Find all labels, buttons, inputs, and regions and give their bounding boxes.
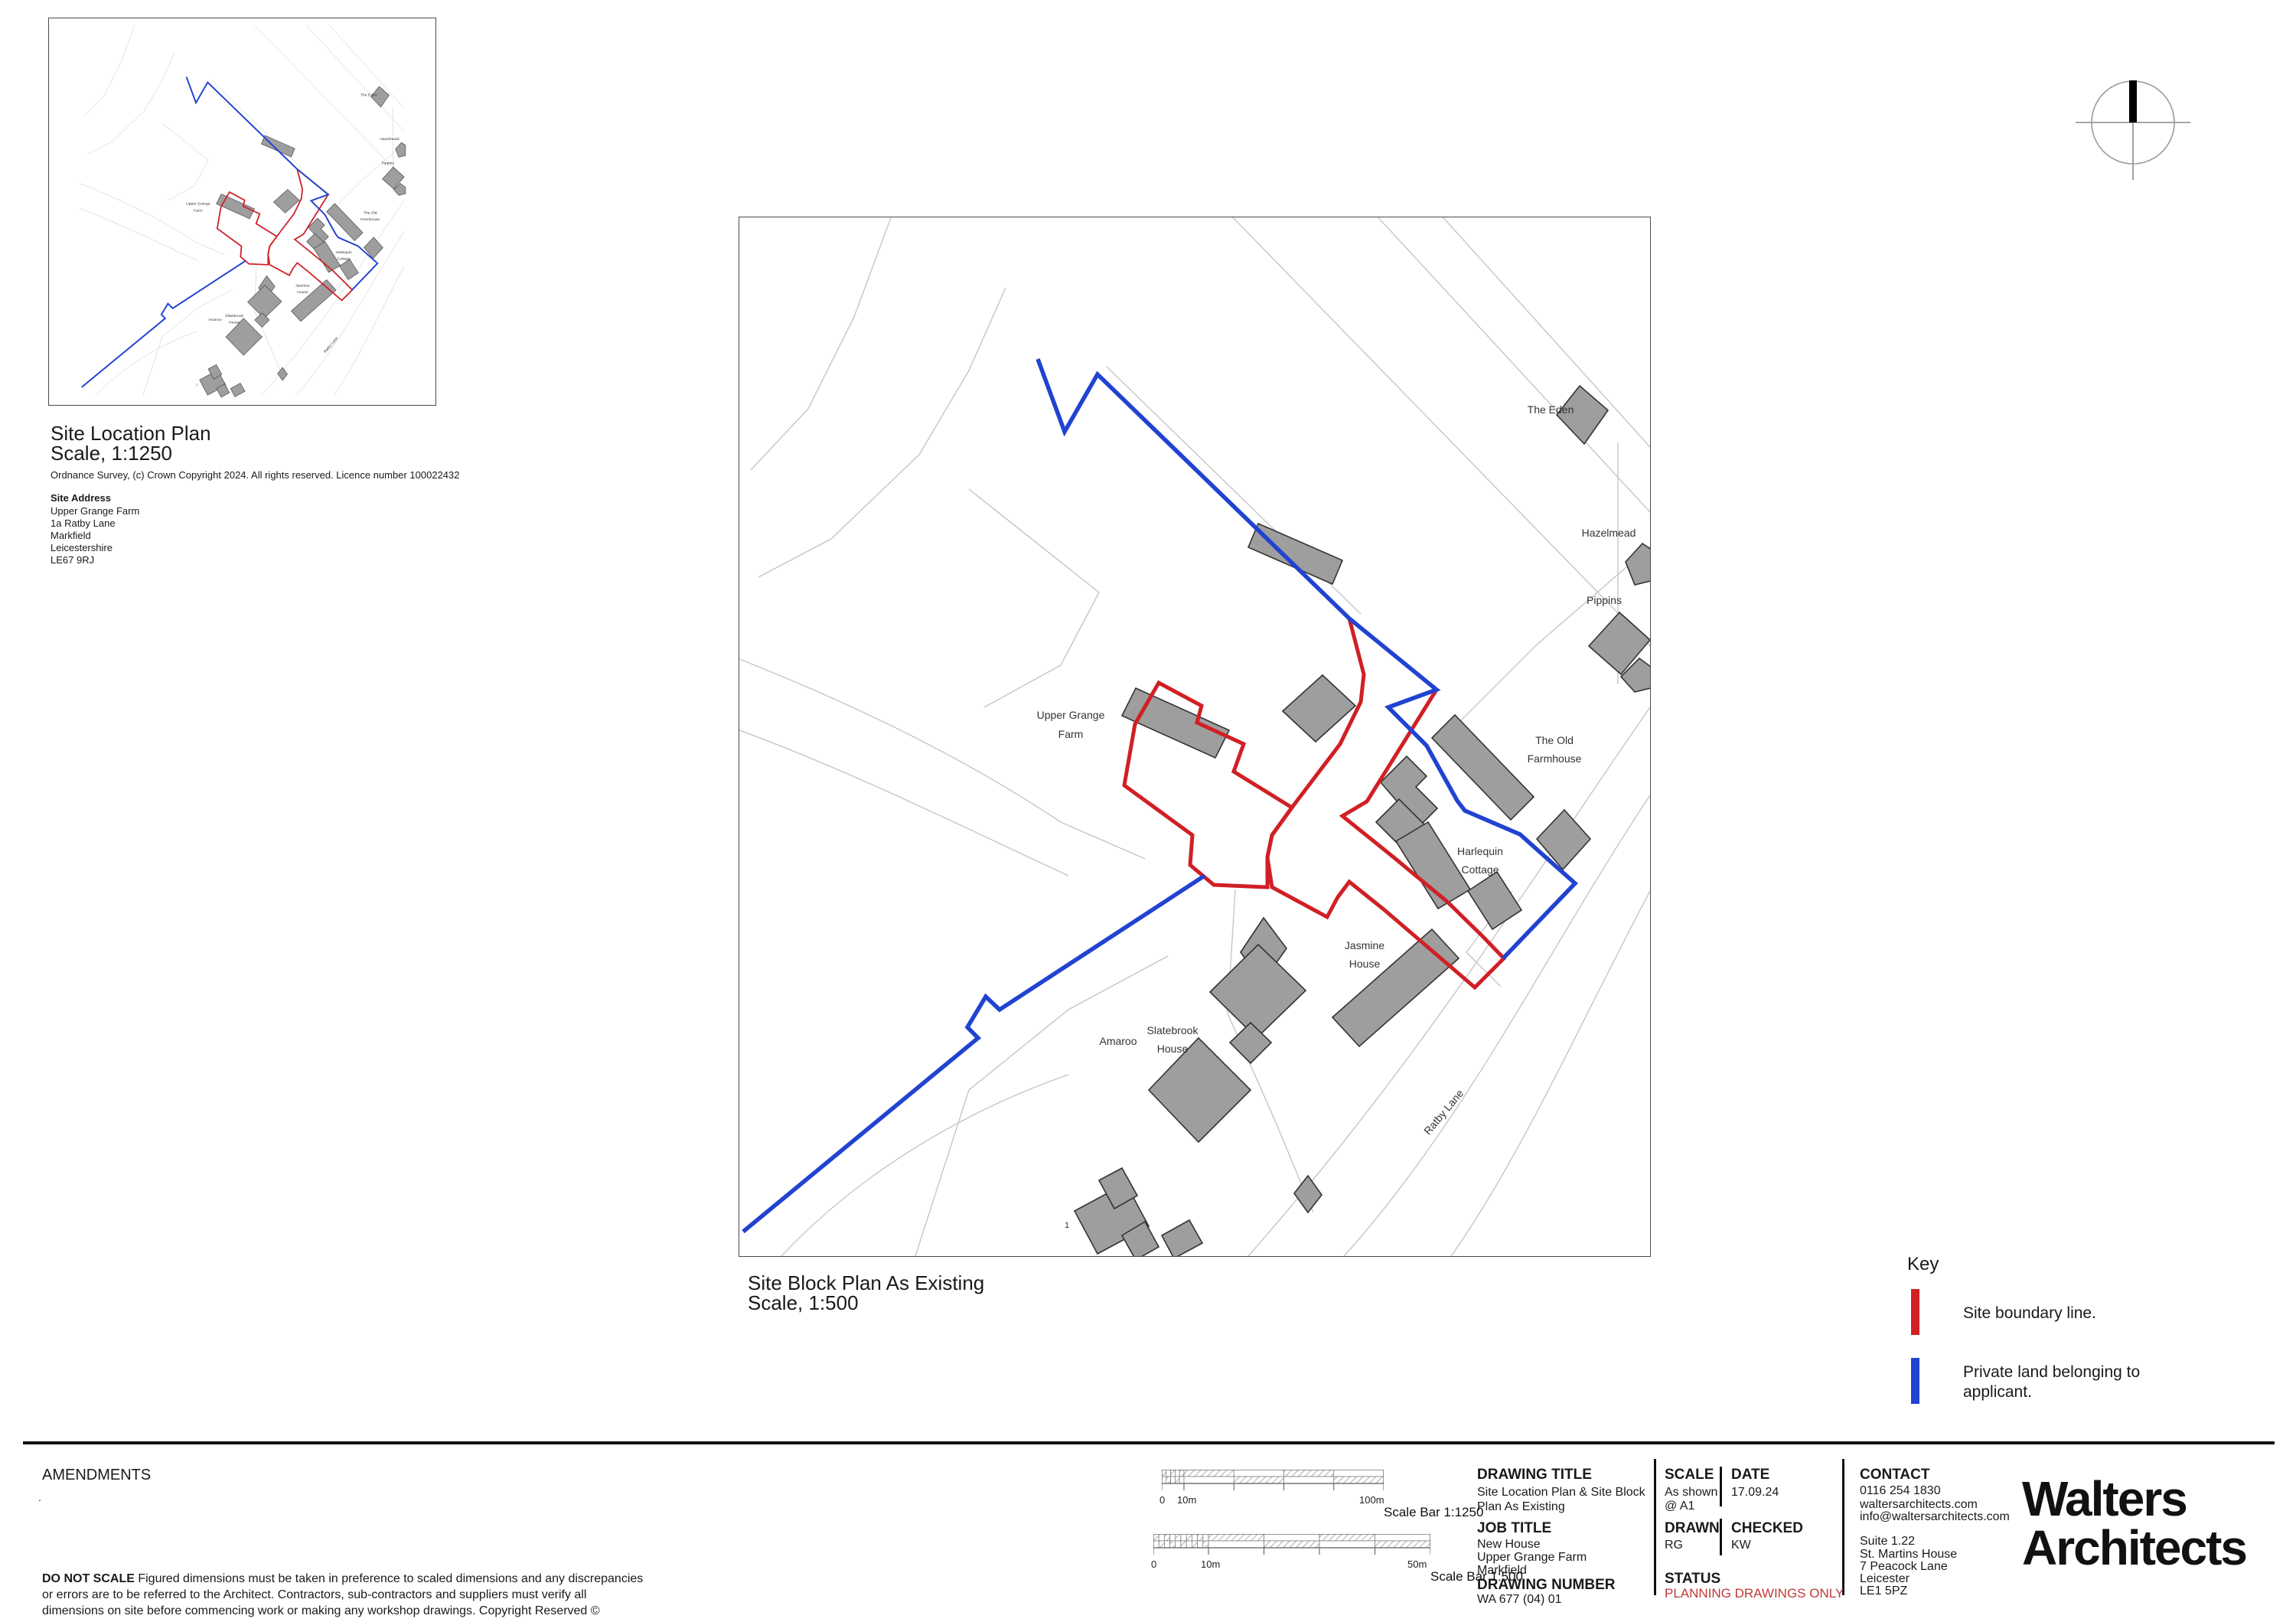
scale-value: As shown	[1665, 1485, 1717, 1500]
contact-heading: CONTACT	[1860, 1467, 1929, 1483]
contact-address-line: LE1 5PZ	[1860, 1584, 1907, 1598]
checked-heading: CHECKED	[1731, 1520, 1803, 1537]
drawn-checked-divider	[1720, 1519, 1722, 1555]
logo-line-1: Walters	[2022, 1474, 2246, 1523]
block-plan-scale: Scale, 1:500	[748, 1291, 859, 1315]
disclaimer-bold: DO NOT SCALE	[42, 1572, 135, 1585]
site-address-line: Upper Grange Farm	[51, 505, 139, 517]
drawing-title-line: Plan As Existing	[1477, 1500, 1565, 1514]
contact-phone: 0116 254 1830	[1860, 1483, 1941, 1498]
drawing-title-line: Site Location Plan & Site Block	[1477, 1485, 1645, 1500]
key-blue-label-2: applicant.	[1963, 1382, 2032, 1402]
key-blue-label-1: Private land belonging to	[1963, 1362, 2140, 1382]
date-value: 17.09.24	[1731, 1485, 1779, 1500]
scale-bar-label: 10m	[1201, 1558, 1220, 1570]
site-location-plan-map	[48, 18, 436, 406]
drawn-heading: DRAWN	[1665, 1520, 1720, 1537]
checked-value: KW	[1731, 1538, 1751, 1552]
drawing-sheet: The Eden Hazelmead Pippins The Old Farmh…	[0, 0, 2296, 1622]
scale-bar-label: 0	[1159, 1494, 1165, 1506]
scale-bar-label: 0	[1151, 1558, 1156, 1570]
scale-bar-label: 10m	[1177, 1494, 1196, 1506]
contact-email: info@waltersarchitects.com	[1860, 1509, 2010, 1524]
location-plan-scale: Scale, 1:1250	[51, 442, 172, 465]
logo-line-2: Architects	[2022, 1523, 2246, 1572]
title-block-rule	[23, 1441, 2275, 1444]
column-divider	[1842, 1459, 1844, 1595]
key-title: Key	[1907, 1254, 1939, 1275]
scale-bar-caption: Scale Bar 1:1250	[1384, 1505, 1483, 1520]
drawing-number-heading: DRAWING NUMBER	[1477, 1577, 1616, 1594]
job-title-heading: JOB TITLE	[1477, 1520, 1551, 1537]
site-address-heading: Site Address	[51, 492, 111, 504]
site-address-line: 1a Ratby Lane	[51, 517, 116, 530]
drawn-value: RG	[1665, 1538, 1683, 1552]
walters-architects-logo: Walters Architects	[2022, 1474, 2246, 1572]
site-address-line: Markfield	[51, 530, 91, 542]
drawing-title-heading: DRAWING TITLE	[1477, 1467, 1592, 1483]
scale-date-divider	[1720, 1467, 1722, 1506]
key-red-label: Site boundary line.	[1963, 1303, 2096, 1323]
drawing-number-value: WA 677 (04) 01	[1477, 1592, 1562, 1607]
scale-value: @ A1	[1665, 1499, 1694, 1513]
scale-heading: SCALE	[1665, 1467, 1714, 1483]
north-arrow-icon	[2076, 65, 2190, 180]
key-blue-swatch	[1911, 1358, 1919, 1404]
key-red-swatch	[1911, 1289, 1919, 1335]
os-copyright: Ordnance Survey, (c) Crown Copyright 202…	[51, 469, 460, 481]
site-address-line: Leicestershire	[51, 542, 113, 554]
scale-bar-label: 100m	[1359, 1494, 1384, 1506]
status-value: PLANNING DRAWINGS ONLY	[1665, 1586, 1844, 1601]
scale-bar-label: 50m	[1407, 1558, 1427, 1570]
date-heading: DATE	[1731, 1467, 1769, 1483]
status-heading: STATUS	[1665, 1571, 1720, 1588]
column-divider	[1654, 1459, 1656, 1595]
scale-bar-1250: 0 10m 100m Scale Bar 1:1250	[1162, 1470, 1384, 1498]
site-block-plan-map	[739, 217, 1651, 1257]
amendments-heading: AMENDMENTS	[42, 1467, 151, 1484]
site-address-line: LE67 9RJ	[51, 554, 94, 566]
disclaimer-text: DO NOT SCALE Figured dimensions must be …	[42, 1571, 647, 1619]
amendments-note: .	[38, 1491, 41, 1503]
scale-bar-500: 0 10m 50m Scale Bar 1:500	[1153, 1534, 1430, 1562]
job-title-line: Markfield	[1477, 1563, 1527, 1578]
